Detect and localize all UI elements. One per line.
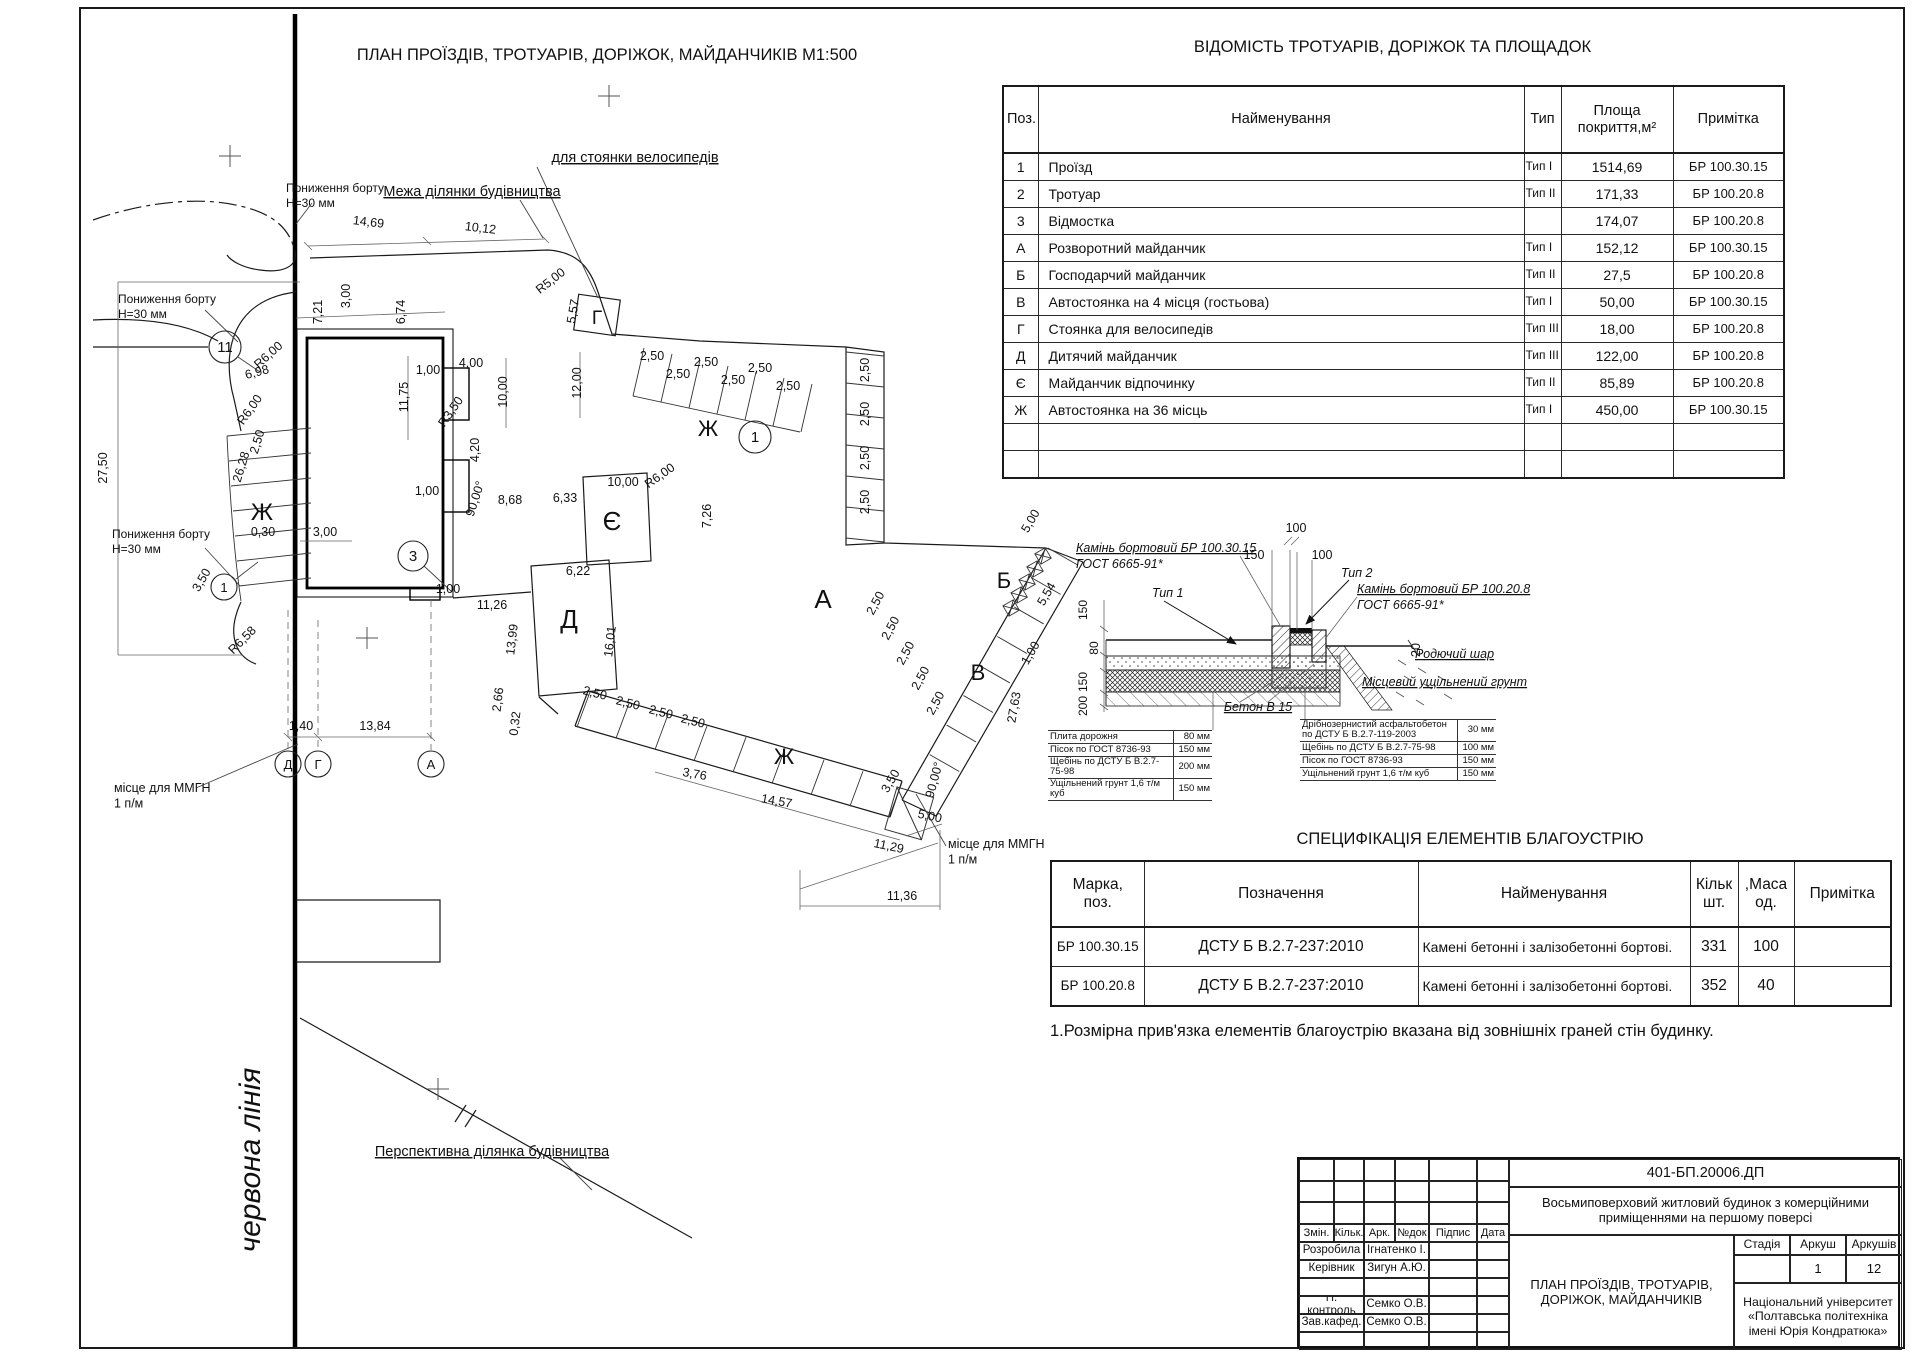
- dim-label: 6,98: [243, 362, 270, 382]
- layer-cell: 150 мм: [1174, 744, 1213, 757]
- dimension-lines: [118, 235, 942, 910]
- dim-label: 2,50: [858, 490, 872, 514]
- table-cell: [1561, 451, 1673, 479]
- dim-label: 5,54: [1034, 580, 1058, 608]
- callout-curb-lowering: Пониження бортуН=30 мм: [118, 292, 216, 321]
- titleblock-cell: [1429, 1314, 1477, 1332]
- table-cell: БР 100.30.15: [1051, 927, 1144, 967]
- titleblock-cell: [1477, 1278, 1509, 1296]
- dim-label: 13,99: [503, 623, 521, 656]
- layer-row: Дрібнозернистий асфальтобетон по ДСТУ Б …: [1300, 720, 1496, 742]
- axis-bubble-label: 1: [751, 429, 759, 446]
- table-cell: Автостоянка на 4 місця (гостьова): [1038, 289, 1524, 316]
- dim-label: R5,00: [533, 265, 568, 297]
- stall-line: [227, 428, 311, 436]
- table-cell: Г: [1003, 316, 1038, 343]
- layer-row: Щебінь по ДСТУ Б В.2.7-75-98200 мм: [1048, 757, 1212, 779]
- area-letter: Ж: [251, 499, 273, 526]
- dim-label: 150: [1076, 600, 1090, 620]
- titleblock-cell: [1429, 1181, 1477, 1203]
- doc-number: 401-БП.20006.ДП: [1509, 1159, 1902, 1187]
- titleblock-cell: [1477, 1332, 1509, 1350]
- table-cell: [1003, 451, 1038, 479]
- table-row: ГСтоянка для велосипедівТип III18,00БР 1…: [1003, 316, 1784, 343]
- dim-label: 2,50: [247, 428, 268, 455]
- dim-label: Родючий шар: [1415, 647, 1494, 661]
- stall-line: [237, 553, 311, 561]
- table-cell: Тип I: [1524, 235, 1561, 262]
- table-row: [1003, 424, 1784, 451]
- dim-label: 6,74: [394, 300, 408, 324]
- dim-label: 7,26: [700, 504, 714, 528]
- dim-label: 27,63: [1004, 691, 1023, 724]
- dim-label: 2,50: [858, 446, 872, 470]
- dim-label: 2,50: [614, 693, 641, 712]
- dim-label: 10,00: [496, 376, 510, 407]
- stage-value: 1: [1790, 1255, 1846, 1283]
- table-cell: [1794, 967, 1891, 1007]
- table-cell: Проїзд: [1038, 153, 1524, 181]
- column-header: ,Маса од.: [1738, 861, 1794, 927]
- column-header: Марка, поз.: [1051, 861, 1144, 927]
- dim-label: 1,00: [1018, 639, 1042, 667]
- titleblock-cell: [1364, 1159, 1395, 1181]
- titleblock-cell: [1477, 1202, 1509, 1224]
- dim-label: 3,00: [339, 284, 353, 308]
- table-cell: Камені бетонні і залізобетонні бортові.: [1418, 927, 1690, 967]
- table-cell: 3: [1003, 208, 1038, 235]
- dim-label: 1,40: [289, 719, 313, 733]
- dim-label: 4,20: [468, 438, 482, 462]
- titleblock-cell: [1299, 1332, 1364, 1350]
- dim-label: 2,50: [679, 711, 706, 730]
- dim-label: 80: [1087, 641, 1101, 655]
- dim-label: 11,75: [397, 382, 411, 412]
- dim-label: 20: [1409, 643, 1423, 657]
- area-letter: Д: [560, 604, 578, 634]
- table-cell: 85,89: [1561, 370, 1673, 397]
- table-row: ВАвтостоянка на 4 місця (гостьова)Тип I5…: [1003, 289, 1784, 316]
- titleblock-cell: [1429, 1332, 1477, 1350]
- layer-cell: Ущільнений грунт 1,6 т/м куб: [1300, 767, 1458, 780]
- dim-label: 2,50: [894, 639, 918, 667]
- table-cell: 331: [1690, 927, 1738, 967]
- titleblock-cell: [1299, 1159, 1334, 1181]
- table-cell: 27,5: [1561, 262, 1673, 289]
- table-cell: Б: [1003, 262, 1038, 289]
- table-cell: ДСТУ Б В.2.7-237:2010: [1144, 927, 1418, 967]
- table-cell: Дитячий майданчик: [1038, 343, 1524, 370]
- layer-row: Ущільнений грунт 1,6 т/м куб150 мм: [1300, 767, 1496, 780]
- table-cell: [1038, 451, 1524, 479]
- titleblock-col-header: Кільк.: [1334, 1224, 1364, 1242]
- layer-cell: Плита дорожня: [1048, 731, 1174, 744]
- stall-line: [846, 383, 884, 387]
- titleblock-cell: [1429, 1278, 1477, 1296]
- dim-label: 100: [1312, 548, 1333, 562]
- table-row: БР 100.30.15ДСТУ Б В.2.7-237:2010Камені …: [1051, 927, 1891, 967]
- dim-label: 2,50: [666, 367, 690, 381]
- dim-label: R6,58: [225, 623, 259, 657]
- dim-label: 90,00°: [923, 761, 946, 800]
- table-cell: 1514,69: [1561, 153, 1673, 181]
- table-cell: [1673, 424, 1784, 451]
- axis-bubble-label: 3: [409, 548, 417, 565]
- stage-header: Стадія: [1734, 1235, 1790, 1255]
- dim-label: Тип 2: [1341, 566, 1373, 580]
- stall-line: [1048, 548, 1078, 565]
- dim-label: Камінь бортовий БР 100.20.8: [1357, 582, 1530, 596]
- area-letter: Ж: [774, 744, 795, 769]
- table-cell: 18,00: [1561, 316, 1673, 343]
- vedomist-table: Поз.НайменуванняТипПлоща покриття,м²Прим…: [1002, 85, 1785, 479]
- titleblock-cell: [1477, 1296, 1509, 1314]
- stall-line: [733, 737, 746, 772]
- table-cell: 174,07: [1561, 208, 1673, 235]
- dim-label: 2,50: [858, 358, 872, 382]
- table-cell: 2: [1003, 181, 1038, 208]
- table-cell: А: [1003, 235, 1038, 262]
- dim-label: 2,50: [640, 349, 664, 363]
- titleblock-cell: [1334, 1202, 1364, 1224]
- title-block: Змін.Кільк.Арк.№докПідписДатаРозробилаІг…: [1297, 1157, 1900, 1348]
- dim-label: 11,29: [873, 836, 906, 856]
- titleblock-cell: [1364, 1202, 1395, 1224]
- table-cell: [1038, 424, 1524, 451]
- column-header: Позначення: [1144, 861, 1418, 927]
- dim-label: 10,00: [607, 475, 638, 489]
- table-cell: БР 100.20.8: [1673, 316, 1784, 343]
- layer-cell: Щебінь по ДСТУ Б В.2.7-75-98: [1300, 741, 1458, 754]
- layer-cell: Щебінь по ДСТУ Б В.2.7-75-98: [1048, 757, 1174, 779]
- project-name: Восьмиповерховий житловий будинок з коме…: [1509, 1187, 1902, 1235]
- table-cell: Ж: [1003, 397, 1038, 424]
- dim-label: 6,22: [566, 564, 590, 578]
- dim-label: 11,26: [477, 598, 507, 612]
- role-name: Ігнатенко І.: [1364, 1242, 1429, 1260]
- dim-label: ГОСТ 6665-91*: [1357, 598, 1445, 612]
- dim-label: Тип 1: [1152, 586, 1183, 600]
- stall-line: [997, 637, 1027, 654]
- stall-line: [745, 372, 756, 420]
- dim-label: 5,57: [564, 298, 582, 324]
- table-cell: [1673, 451, 1784, 479]
- table-cell: Майданчик відпочинку: [1038, 370, 1524, 397]
- stage-value: [1734, 1255, 1790, 1283]
- titleblock-col-header: Змін.: [1299, 1224, 1334, 1242]
- stage-value: 12: [1846, 1255, 1902, 1283]
- table-cell: БР 100.20.8: [1673, 370, 1784, 397]
- dim-label: 2,50: [694, 355, 718, 369]
- dim-label: ГОСТ 6665-91*: [1076, 557, 1164, 571]
- titleblock-cell: [1299, 1181, 1334, 1203]
- dim-label: R6,00: [234, 392, 265, 427]
- dim-label: Камінь бортовий БР 100.30.15: [1076, 541, 1256, 555]
- layer-cell: Пісок по ГОСТ 8736-93: [1048, 744, 1174, 757]
- table-cell: Тротуар: [1038, 181, 1524, 208]
- table-row: БГосподарчий майданчикТип II27,5БР 100.2…: [1003, 262, 1784, 289]
- titleblock-col-header: Дата: [1477, 1224, 1509, 1242]
- dim-label: 0,32: [507, 711, 524, 737]
- dim-label: 13,84: [359, 719, 390, 733]
- university-name: Національний університет «Полтавська пол…: [1734, 1283, 1902, 1350]
- dim-label: 200: [1076, 696, 1090, 716]
- layer-cell: 100 мм: [1458, 741, 1497, 754]
- titleblock-cell: [1429, 1242, 1477, 1260]
- titleblock-cell: [1429, 1159, 1477, 1181]
- plan-labels: ПЛАН ПРОЇЗДІВ, ТРОТУАРІВ, ДОРІЖОК, МАЙДА…: [96, 45, 1059, 1252]
- layer-row: Плита дорожня80 мм: [1048, 731, 1212, 744]
- dim-label: 1,00: [436, 582, 460, 596]
- vedomist-title: ВІДОМІСТЬ ТРОТУАРІВ, ДОРІЖОК ТА ПЛОЩАДОК: [1002, 38, 1783, 57]
- table-cell: Відмостка: [1038, 208, 1524, 235]
- stall-line: [801, 384, 812, 432]
- role-name: Семко О.В.: [1364, 1314, 1429, 1332]
- dim-label: 2,50: [909, 664, 933, 692]
- table-cell: В: [1003, 289, 1038, 316]
- building-outline: [297, 329, 469, 600]
- callout-mmgn: місце для ММГН1 п/м: [948, 837, 1045, 867]
- table-row: ЄМайданчик відпочинкуТип II85,89БР 100.2…: [1003, 370, 1784, 397]
- survey-cross-marks: [219, 85, 620, 1100]
- titleblock-cell: [1477, 1181, 1509, 1203]
- red-line-label: червона лінія: [234, 1068, 267, 1253]
- dim-label: 8,68: [498, 493, 522, 507]
- table-cell: БР 100.20.8: [1673, 208, 1784, 235]
- table-cell: [1524, 451, 1561, 479]
- dim-label: R3,50: [435, 394, 466, 429]
- role-name: [1364, 1278, 1429, 1296]
- titleblock-cell: [1364, 1181, 1395, 1203]
- dim-label: Місцевий ущільнений грунт: [1362, 675, 1527, 689]
- table-cell: БР 100.30.15: [1673, 397, 1784, 424]
- column-header: Поз.: [1003, 86, 1038, 153]
- table-cell: 1: [1003, 153, 1038, 181]
- table-cell: Господарчий майданчик: [1038, 262, 1524, 289]
- table-cell: БР 100.20.8: [1051, 967, 1144, 1007]
- axis-bubble-label: А: [427, 757, 436, 772]
- table-cell: [1524, 208, 1561, 235]
- stall-line: [846, 476, 884, 480]
- table-cell: БР 100.30.15: [1673, 289, 1784, 316]
- pavement-layers-type2: Дрібнозернистий асфальтобетон по ДСТУ Б …: [1300, 719, 1496, 781]
- axis-bubble-label: 11: [217, 339, 233, 356]
- dim-label: 2,50: [858, 402, 872, 426]
- dim-label: 2,50: [776, 379, 800, 393]
- callout-curb-lowering: Пониження бортуН=30 мм: [286, 181, 384, 210]
- area-letter: Ж: [698, 416, 719, 441]
- titleblock-cell: [1299, 1202, 1334, 1224]
- table-cell: Розворотний майданчик: [1038, 235, 1524, 262]
- dim-label: 12,00: [570, 367, 584, 398]
- column-header: Площа покриття,м²: [1561, 86, 1673, 153]
- table-cell: БР 100.30.15: [1673, 235, 1784, 262]
- table-cell: Тип I: [1524, 153, 1561, 181]
- column-header: Тип: [1524, 86, 1561, 153]
- parking-stalls: [227, 348, 1078, 817]
- titleblock-cell: [1364, 1332, 1429, 1350]
- dim-label: 2,50: [721, 373, 745, 387]
- table-cell: 152,12: [1561, 235, 1673, 262]
- table-cell: Тип III: [1524, 343, 1561, 370]
- layer-cell: Дрібнозернистий асфальтобетон по ДСТУ Б …: [1300, 720, 1458, 742]
- table-cell: БР 100.20.8: [1673, 343, 1784, 370]
- column-header: Примітка: [1794, 861, 1891, 927]
- dim-label: 7,21: [311, 300, 325, 324]
- titleblock-cell: [1477, 1314, 1509, 1332]
- dim-label: 2,50: [647, 702, 674, 721]
- table-cell: ДСТУ Б В.2.7-237:2010: [1144, 967, 1418, 1007]
- table-cell: 450,00: [1561, 397, 1673, 424]
- titleblock-cell: [1429, 1296, 1477, 1314]
- role-name: Зигун А.Ю.: [1364, 1260, 1429, 1278]
- dim-label: 2,50: [864, 589, 888, 617]
- table-row: БР 100.20.8ДСТУ Б В.2.7-237:2010Камені б…: [1051, 967, 1891, 1007]
- dim-label: 26,28: [230, 450, 253, 484]
- titleblock-cell: [1395, 1181, 1429, 1203]
- table-cell: 352: [1690, 967, 1738, 1007]
- titleblock-cell: [1429, 1260, 1477, 1278]
- dim-label: 0,30: [251, 525, 275, 539]
- sheet-title: ПЛАН ПРОЇЗДІВ, ТРОТУАРІВ, ДОРІЖОК, МАЙДА…: [1509, 1235, 1734, 1350]
- dim-label: 3,00: [313, 525, 337, 539]
- role-name: Семко О.В.: [1364, 1296, 1429, 1314]
- titleblock-cell: [1477, 1242, 1509, 1260]
- axis-bubble-label: Д: [284, 757, 293, 772]
- table-row: АРозворотний майданчикТип I152,12БР 100.…: [1003, 235, 1784, 262]
- dim-label: 2,50: [748, 361, 772, 375]
- callout-site-boundary: Межа ділянки будівництва: [383, 184, 561, 200]
- layer-cell: 150 мм: [1174, 778, 1213, 800]
- dim-label: 1,00: [416, 363, 440, 377]
- table-cell: [1794, 927, 1891, 967]
- area-letter: Б: [997, 568, 1011, 593]
- titleblock-cell: [1477, 1260, 1509, 1278]
- dim-label: 3,50: [189, 566, 213, 594]
- table-row: 2ТротуарТип II171,33БР 100.20.8: [1003, 181, 1784, 208]
- table-cell: БР 100.30.15: [1673, 153, 1784, 181]
- column-header: Кільк шт.: [1690, 861, 1738, 927]
- table-cell: Тип I: [1524, 289, 1561, 316]
- layer-cell: Ущільнений грунт 1,6 т/м куб: [1048, 778, 1174, 800]
- stall-line: [846, 352, 884, 356]
- titleblock-cell: [1429, 1202, 1477, 1224]
- spec-title: СПЕЦИФІКАЦІЯ ЕЛЕМЕНТІВ БЛАГОУСТРІЮ: [1050, 830, 1890, 849]
- stall-line: [811, 760, 824, 795]
- table-row: [1003, 451, 1784, 479]
- layer-row: Пісок по ГОСТ 8736-93150 мм: [1300, 754, 1496, 767]
- stage-header: Аркуш: [1790, 1235, 1846, 1255]
- table-cell: Тип II: [1524, 181, 1561, 208]
- dim-label: 1,00: [415, 484, 439, 498]
- callout-curb-lowering: Пониження бортуН=30 мм: [112, 527, 210, 556]
- table-cell: 50,00: [1561, 289, 1673, 316]
- dim-label: 10,12: [464, 219, 497, 237]
- layer-row: Пісок по ГОСТ 8736-93150 мм: [1048, 744, 1212, 757]
- dim-label: 150: [1076, 672, 1090, 692]
- dim-label: 4,00: [459, 356, 483, 370]
- table-row: 3Відмостка174,07БР 100.20.8: [1003, 208, 1784, 235]
- dim-label: 2,50: [879, 614, 903, 642]
- dim-label: 2,66: [490, 687, 507, 713]
- titleblock-cell: [1395, 1202, 1429, 1224]
- dim-label: 100: [1286, 521, 1307, 535]
- table-cell: Автостоянка на 36 місць: [1038, 397, 1524, 424]
- table-cell: [1561, 424, 1673, 451]
- table-cell: 122,00: [1561, 343, 1673, 370]
- stall-line: [850, 771, 863, 806]
- table-cell: Тип II: [1524, 370, 1561, 397]
- dim-label: 11,36: [887, 889, 917, 903]
- layer-row: Ущільнений грунт 1,6 т/м куб150 мм: [1048, 778, 1212, 800]
- titleblock-cell: [1334, 1159, 1364, 1181]
- table-row: ЖАвтостоянка на 36 місцьТип I450,00БР 10…: [1003, 397, 1784, 424]
- titleblock-cell: [1395, 1159, 1429, 1181]
- role-label: Керівник: [1299, 1260, 1364, 1278]
- table-cell: 100: [1738, 927, 1794, 967]
- dim-label: 6,33: [553, 491, 577, 505]
- callout-perspective-site: Перспективна ділянка будівництва: [375, 1144, 610, 1160]
- dim-label: 16,01: [601, 625, 619, 658]
- stall-line: [239, 578, 311, 586]
- column-header: Примітка: [1673, 86, 1784, 153]
- table-cell: Тип I: [1524, 397, 1561, 424]
- table-row: ДДитячий майданчикТип III122,00БР 100.20…: [1003, 343, 1784, 370]
- plan-title: ПЛАН ПРОЇЗДІВ, ТРОТУАРІВ, ДОРІЖОК, МАЙДА…: [357, 45, 857, 64]
- layer-cell: 150 мм: [1458, 754, 1497, 767]
- table-cell: Камені бетонні і залізобетонні бортові.: [1418, 967, 1690, 1007]
- drawing-note: 1.Розмірна прив'язка елементів благоустр…: [1050, 1022, 1900, 1041]
- table-cell: Тип III: [1524, 316, 1561, 343]
- layer-cell: 200 мм: [1174, 757, 1213, 779]
- spec-table: Марка, поз.ПозначенняНайменуванняКільк ш…: [1050, 860, 1892, 1007]
- table-cell: [1003, 424, 1038, 451]
- dim-label: Бетон В 15: [1224, 700, 1292, 714]
- area-letter: В: [971, 660, 986, 685]
- area-letter: Є: [603, 506, 622, 536]
- callout-bike-parking: для стоянки велосипедів: [551, 150, 718, 166]
- column-header: Найменування: [1038, 86, 1524, 153]
- dim-label: 5,00: [1018, 507, 1042, 535]
- layer-cell: 80 мм: [1174, 731, 1213, 744]
- titleblock-cell: [1334, 1181, 1364, 1203]
- stall-line: [964, 696, 994, 713]
- dim-label: 90,00°: [463, 479, 488, 518]
- pavement-layers-type1: Плита дорожня80 ммПісок по ГОСТ 8736-931…: [1048, 730, 1212, 801]
- role-label: Розробила: [1299, 1242, 1364, 1260]
- role-label: Зав.кафед.: [1299, 1314, 1364, 1332]
- layer-row: Щебінь по ДСТУ Б В.2.7-75-98100 мм: [1300, 741, 1496, 754]
- dim-label: 2,50: [924, 689, 948, 717]
- spec-header-row: Марка, поз.ПозначенняНайменуванняКільк ш…: [1051, 861, 1891, 927]
- role-label: Н. контроль: [1299, 1296, 1364, 1314]
- dim-label: 27,50: [96, 452, 110, 483]
- stall-line: [846, 538, 884, 542]
- layer-cell: Пісок по ГОСТ 8736-93: [1300, 754, 1458, 767]
- table-cell: Тип II: [1524, 262, 1561, 289]
- titleblock-col-header: Арк.: [1364, 1224, 1395, 1242]
- titleblock-col-header: №док: [1395, 1224, 1429, 1242]
- table-cell: Є: [1003, 370, 1038, 397]
- area-letter: Г: [592, 308, 602, 329]
- stage-header: Аркушів: [1846, 1235, 1902, 1255]
- layer-cell: 30 мм: [1458, 720, 1497, 742]
- table-cell: БР 100.20.8: [1673, 181, 1784, 208]
- titleblock-col-header: Підпис: [1429, 1224, 1477, 1242]
- table-cell: 171,33: [1561, 181, 1673, 208]
- column-header: Найменування: [1418, 861, 1690, 927]
- dim-label: R6,00: [642, 460, 677, 491]
